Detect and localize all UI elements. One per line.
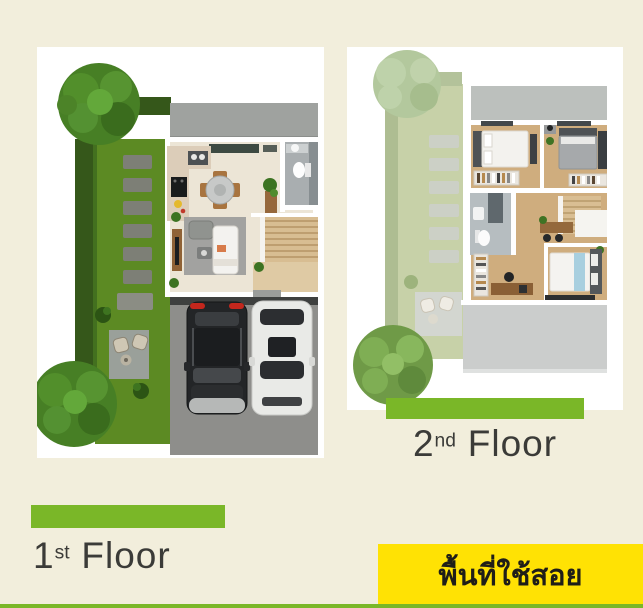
usable-area-badge: พื้นที่ใช้สอย: [378, 544, 643, 605]
floor2-underline: [386, 398, 584, 419]
floor1-plan-image: [37, 47, 324, 458]
closet: [474, 254, 488, 296]
carport-roof: [461, 300, 609, 373]
floor1-word: Floor: [81, 535, 170, 576]
floor2-plan-image: [347, 47, 623, 410]
bathroom: [470, 193, 516, 255]
floor2-number: 2: [413, 423, 435, 464]
floor1-ordinal-suffix: st: [55, 542, 70, 563]
floorplan-infographic: 1stFloor 2ndFloor พื้นที่ใช้สอย: [0, 0, 643, 608]
floor1-label: 1stFloor: [33, 536, 171, 577]
usable-area-label: พื้นที่ใช้สอย: [438, 552, 582, 598]
floor1-number: 1: [33, 535, 55, 576]
entry-step: [253, 290, 281, 297]
right-margin-wall: [607, 86, 623, 410]
tree-faded: [373, 50, 441, 118]
white-car: [249, 301, 315, 415]
floor1-underline: [31, 505, 225, 528]
floor2-word: Floor: [468, 423, 557, 464]
bottom-accent-line: [0, 604, 643, 608]
floor2-ordinal-suffix: nd: [435, 430, 456, 451]
floor1-plan-card: [37, 47, 324, 458]
patio: [109, 330, 149, 379]
patio-faded: [415, 292, 462, 336]
tree: [57, 63, 140, 145]
floor2-plan-card: [347, 47, 623, 410]
floor2-label: 2ndFloor: [386, 424, 584, 465]
floor2-garden-faded: [353, 50, 463, 405]
stairs: [251, 213, 318, 292]
bathroom: [280, 142, 318, 212]
floor2-exterior: [471, 86, 608, 124]
black-car: [184, 302, 250, 414]
tree: [353, 325, 433, 405]
floor1-garden: [37, 63, 171, 447]
